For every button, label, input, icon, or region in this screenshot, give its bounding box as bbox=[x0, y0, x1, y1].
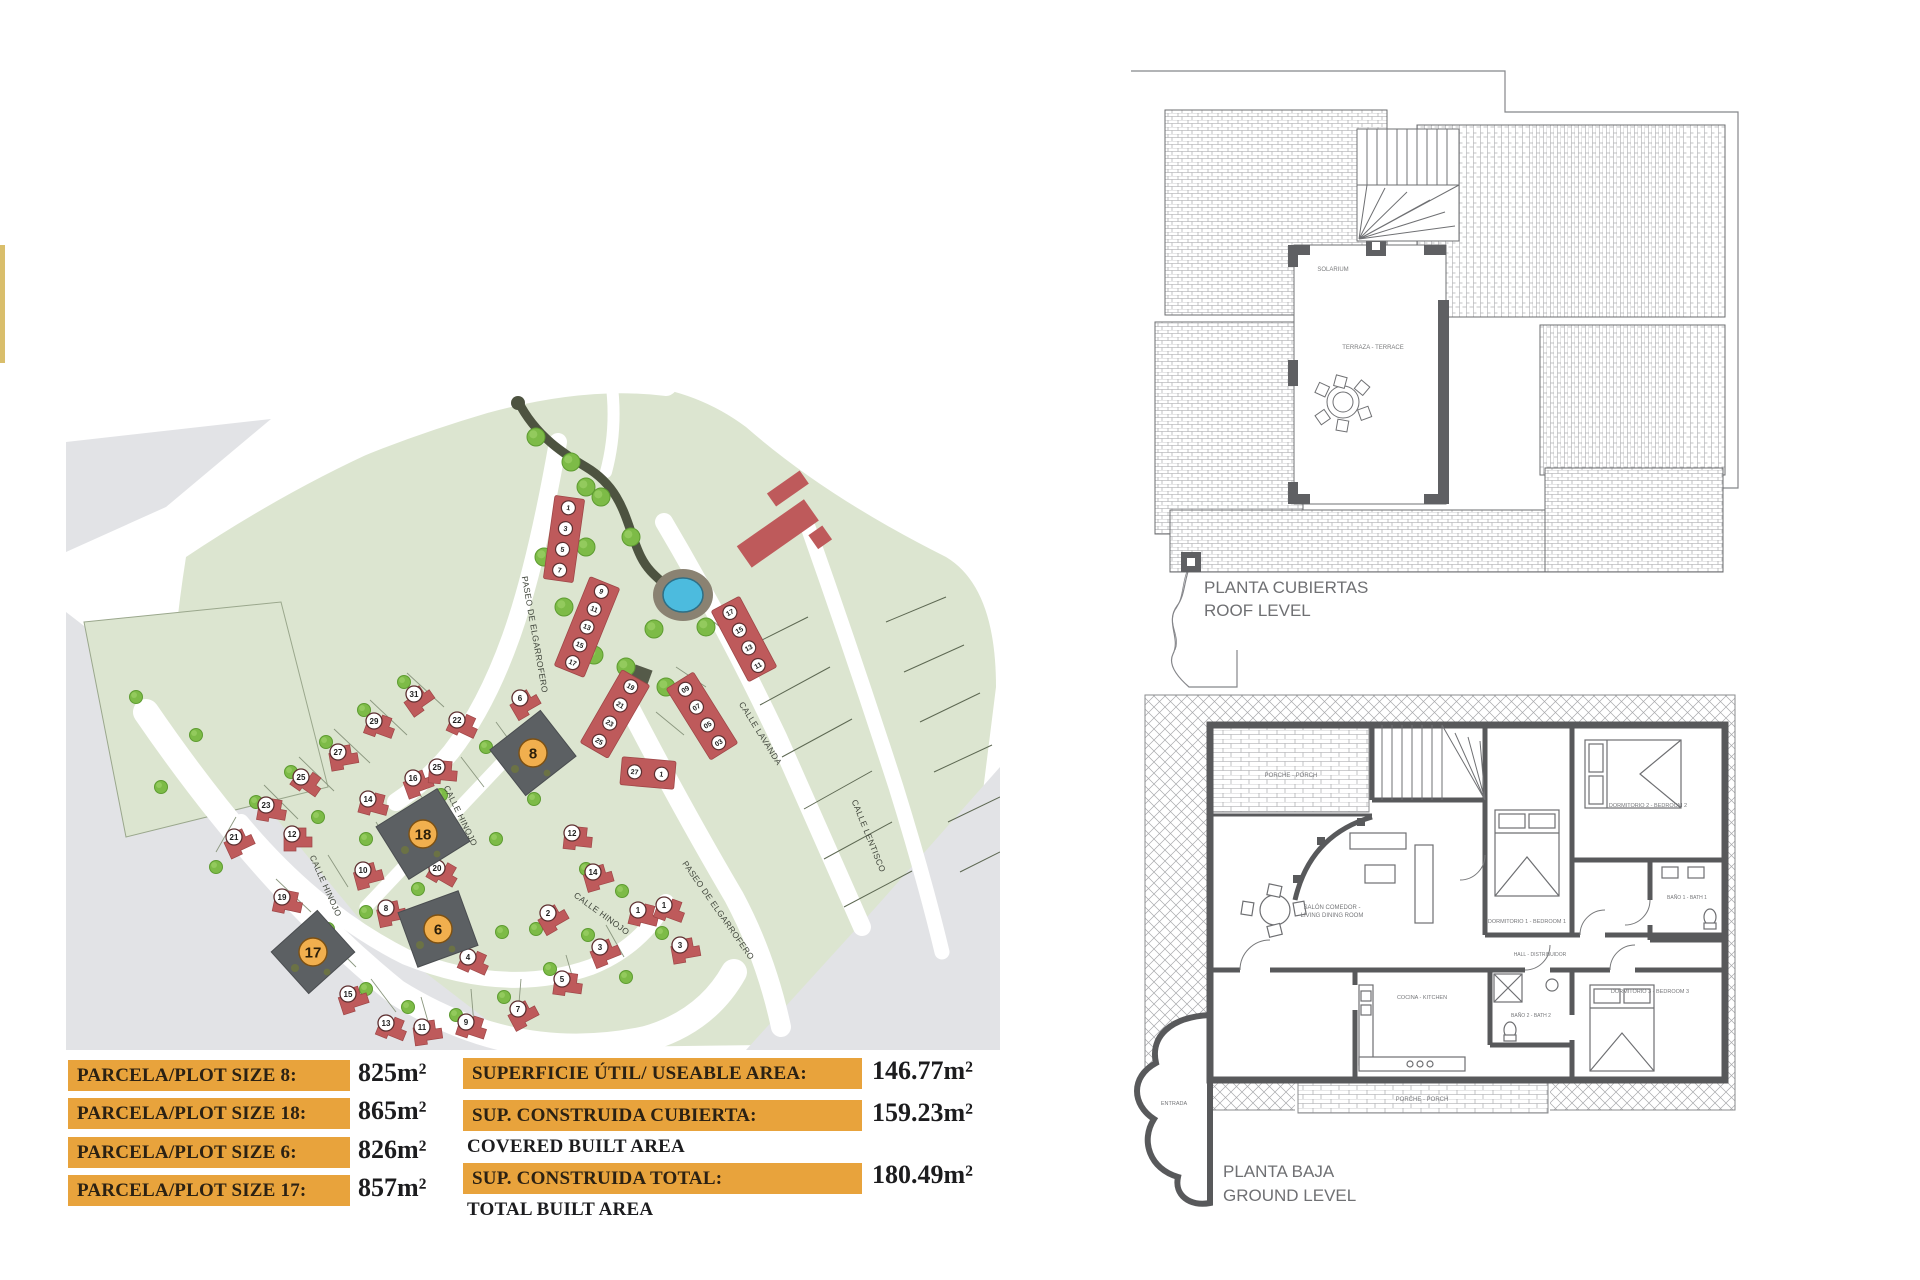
svg-text:1: 1 bbox=[659, 771, 664, 778]
area-row-label: SUP. CONSTRUIDA CUBIERTA: bbox=[463, 1100, 862, 1131]
svg-text:3: 3 bbox=[598, 943, 603, 952]
svg-text:22: 22 bbox=[453, 716, 462, 725]
swimming-pool bbox=[663, 578, 703, 612]
tree-icon bbox=[577, 478, 595, 496]
tree-icon bbox=[555, 598, 573, 616]
svg-text:8: 8 bbox=[529, 745, 537, 762]
svg-text:31: 31 bbox=[410, 690, 419, 699]
site-plan-map: 1357911131517192123252710907050317151311… bbox=[66, 367, 1000, 1050]
tree-icon bbox=[360, 906, 373, 919]
ground-title-en: GROUND LEVEL bbox=[1223, 1186, 1356, 1205]
chimney-icon bbox=[1181, 552, 1201, 572]
left-accent-bar bbox=[0, 245, 5, 363]
tree-icon bbox=[527, 428, 545, 446]
room-label: ENTRADA bbox=[1161, 1101, 1188, 1107]
svg-text:5: 5 bbox=[560, 975, 565, 984]
plot-size-row-value: 826m² bbox=[358, 1135, 426, 1165]
svg-text:25: 25 bbox=[297, 773, 306, 782]
tree-icon bbox=[190, 729, 203, 742]
svg-text:18: 18 bbox=[415, 826, 432, 843]
svg-text:14: 14 bbox=[364, 795, 373, 804]
tree-icon bbox=[402, 1001, 415, 1014]
svg-text:9: 9 bbox=[464, 1018, 469, 1027]
plot-size-row-label: PARCELA/PLOT SIZE 17: bbox=[68, 1175, 350, 1206]
tree-icon bbox=[320, 736, 333, 749]
room-label: LIVING DINING ROOM bbox=[1301, 913, 1364, 919]
tree-icon bbox=[528, 793, 541, 806]
svg-text:16: 16 bbox=[409, 774, 418, 783]
svg-text:23: 23 bbox=[262, 801, 271, 810]
svg-text:6: 6 bbox=[518, 694, 523, 703]
svg-text:2: 2 bbox=[546, 909, 551, 918]
svg-text:21: 21 bbox=[230, 833, 239, 842]
tree-icon bbox=[620, 971, 633, 984]
room-label: BAÑO 2 - BATH 2 bbox=[1511, 1012, 1551, 1019]
area-row-value: 146.77m² bbox=[872, 1056, 973, 1086]
tree-icon bbox=[656, 927, 669, 940]
room-label: PORCHE - PORCH bbox=[1396, 1097, 1449, 1103]
ground-plan: PORCHE - PORCHDORMITORIO 1 - BEDROOM 1DO… bbox=[1110, 685, 1760, 1245]
room-label: PORCHE - PORCH bbox=[1265, 773, 1318, 779]
svg-text:12: 12 bbox=[288, 830, 297, 839]
room-label: SALÓN COMEDOR - bbox=[1303, 904, 1360, 911]
plot-size-row-label: PARCELA/PLOT SIZE 18: bbox=[68, 1098, 350, 1129]
tree-icon bbox=[582, 929, 595, 942]
roof-terrace bbox=[1288, 236, 1449, 504]
tree-icon bbox=[412, 883, 425, 896]
tree-icon bbox=[360, 833, 373, 846]
tree-icon bbox=[130, 691, 143, 704]
room-label: DORMITORIO 2 - BEDROOM 2 bbox=[1609, 803, 1687, 809]
tree-icon bbox=[697, 618, 715, 636]
room-label: TERRAZA - TERRACE bbox=[1342, 345, 1404, 351]
svg-text:29: 29 bbox=[370, 717, 379, 726]
svg-text:7: 7 bbox=[516, 1005, 521, 1014]
porch-top bbox=[1213, 728, 1369, 812]
svg-text:14: 14 bbox=[589, 868, 598, 877]
svg-text:8: 8 bbox=[384, 904, 389, 913]
room-label: DORMITORIO 1 - BEDROOM 1 bbox=[1488, 919, 1566, 925]
tree-icon bbox=[312, 811, 325, 824]
area-row-label: SUPERFICIE ÚTIL/ USEABLE AREA: bbox=[463, 1058, 862, 1089]
room-label: SOLARIUM bbox=[1317, 267, 1348, 273]
tree-icon bbox=[544, 963, 557, 976]
svg-text:4: 4 bbox=[466, 953, 471, 962]
tree-icon bbox=[498, 991, 511, 1004]
svg-text:13: 13 bbox=[382, 1019, 391, 1028]
room-label: BAÑO 1 - BATH 1 bbox=[1667, 894, 1707, 901]
svg-text:1: 1 bbox=[636, 906, 641, 915]
tree-icon bbox=[577, 538, 595, 556]
terraced-block: 271 bbox=[620, 757, 676, 790]
svg-text:3: 3 bbox=[678, 941, 683, 950]
room-label: HALL - DISTRIBUIDOR bbox=[1514, 952, 1567, 958]
roof-title-en: ROOF LEVEL bbox=[1204, 601, 1311, 620]
svg-text:12: 12 bbox=[568, 829, 577, 838]
roof-title-es: PLANTA CUBIERTAS bbox=[1204, 578, 1368, 597]
area-row-value: 159.23m² bbox=[872, 1098, 973, 1128]
area-row-subtitle: TOTAL BUILT AREA bbox=[467, 1199, 653, 1221]
svg-text:25: 25 bbox=[433, 763, 442, 772]
svg-text:10: 10 bbox=[359, 866, 368, 875]
svg-text:19: 19 bbox=[278, 893, 287, 902]
plot-size-row-label: PARCELA/PLOT SIZE 6: bbox=[68, 1137, 350, 1168]
roof-stairs bbox=[1357, 129, 1459, 241]
tree-icon bbox=[562, 453, 580, 471]
tree-icon bbox=[616, 885, 629, 898]
tree-icon bbox=[622, 528, 640, 546]
roof-plan: SOLARIUMTERRAZA - TERRACE PLANTA CUBIERT… bbox=[1085, 50, 1745, 710]
ground-title-es: PLANTA BAJA bbox=[1223, 1162, 1335, 1181]
svg-text:27: 27 bbox=[630, 769, 638, 777]
tree-icon bbox=[645, 620, 663, 638]
svg-text:20: 20 bbox=[433, 864, 442, 873]
svg-text:6: 6 bbox=[434, 921, 442, 938]
area-row-label: SUP. CONSTRUIDA TOTAL: bbox=[463, 1163, 862, 1194]
svg-text:15: 15 bbox=[344, 990, 353, 999]
room-label: COCINA - KITCHEN bbox=[1397, 995, 1447, 1001]
tree-icon bbox=[210, 861, 223, 874]
svg-text:17: 17 bbox=[305, 944, 322, 961]
tree-icon bbox=[155, 781, 168, 794]
area-row-value: 180.49m² bbox=[872, 1160, 973, 1190]
plot-size-row-label: PARCELA/PLOT SIZE 8: bbox=[68, 1060, 350, 1091]
tree-icon bbox=[496, 926, 509, 939]
svg-text:11: 11 bbox=[418, 1023, 427, 1032]
room-label: DORMITORIO 3 - BEDROOM 3 bbox=[1611, 989, 1689, 995]
svg-text:27: 27 bbox=[334, 748, 343, 757]
plot-size-row-value: 825m² bbox=[358, 1058, 426, 1088]
brochure-page: 1357911131517192123252710907050317151311… bbox=[0, 0, 1920, 1280]
area-row-subtitle: COVERED BUILT AREA bbox=[467, 1136, 685, 1158]
tree-icon bbox=[398, 676, 411, 689]
plot-size-row-value: 857m² bbox=[358, 1173, 426, 1203]
plot-size-row-value: 865m² bbox=[358, 1096, 426, 1126]
tree-icon bbox=[490, 833, 503, 846]
tree-icon bbox=[480, 741, 493, 754]
svg-text:1: 1 bbox=[662, 901, 667, 910]
